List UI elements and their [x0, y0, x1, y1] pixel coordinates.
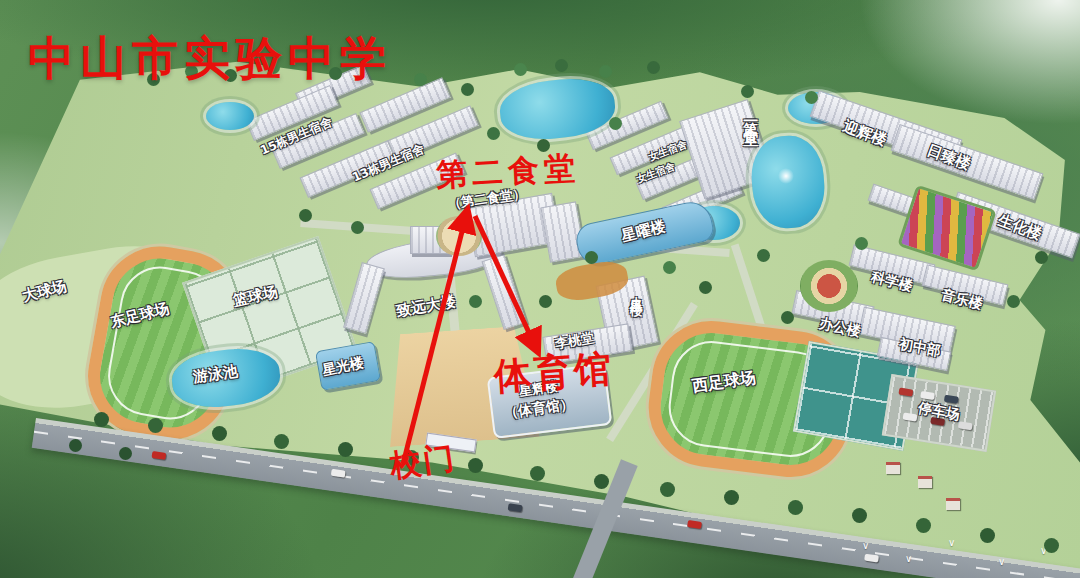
bird-icon: ∨: [1040, 545, 1047, 556]
pond: [206, 102, 254, 130]
annotation-school-gate: 校门: [388, 442, 458, 482]
bird-icon: ∨: [998, 556, 1005, 567]
parked-car: [898, 388, 913, 397]
car: [508, 503, 523, 512]
annotation-gymnasium: 体育馆: [493, 350, 615, 395]
fountain: [778, 168, 794, 184]
annotation-second-canteen: 第二食堂: [435, 152, 580, 190]
round-garden: [800, 260, 858, 312]
bird-icon: ∨: [948, 537, 955, 548]
map-label: 火星楼: [629, 286, 643, 295]
car: [687, 520, 702, 529]
map-label: 第一食堂: [742, 110, 758, 122]
car: [151, 451, 166, 460]
parked-car: [903, 412, 918, 421]
parked-car: [944, 395, 959, 404]
bird-icon: ∨: [905, 553, 912, 564]
page-title: 中山市实验中学: [28, 28, 392, 90]
house: [946, 498, 960, 510]
house: [886, 462, 900, 474]
campus-map: ∨ ∨ ∨ ∨ ∨ 中山市实验中学 大球场东足球场篮球场游泳池星光楼致远大楼（第…: [0, 0, 1080, 578]
house: [918, 476, 932, 488]
car: [864, 554, 879, 563]
tree-cluster: [0, 0, 11, 11]
parked-car: [920, 391, 935, 400]
bird-icon: ∨: [862, 540, 869, 551]
round-plaza: [436, 216, 482, 256]
car: [331, 469, 346, 478]
parked-car: [958, 421, 973, 430]
